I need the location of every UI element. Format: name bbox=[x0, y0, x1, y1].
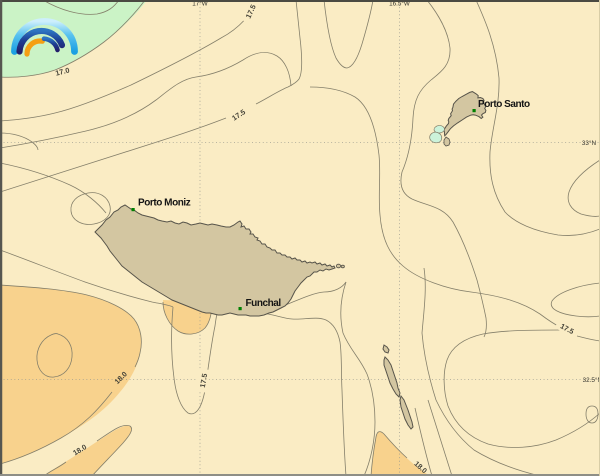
svg-text:Funchal: Funchal bbox=[246, 298, 282, 309]
svg-text:Porto Moniz: Porto Moniz bbox=[138, 198, 191, 209]
svg-text:33°N: 33°N bbox=[582, 139, 597, 147]
svg-text:32.5°N: 32.5°N bbox=[583, 376, 600, 384]
svg-text:Porto Santo: Porto Santo bbox=[478, 99, 530, 110]
